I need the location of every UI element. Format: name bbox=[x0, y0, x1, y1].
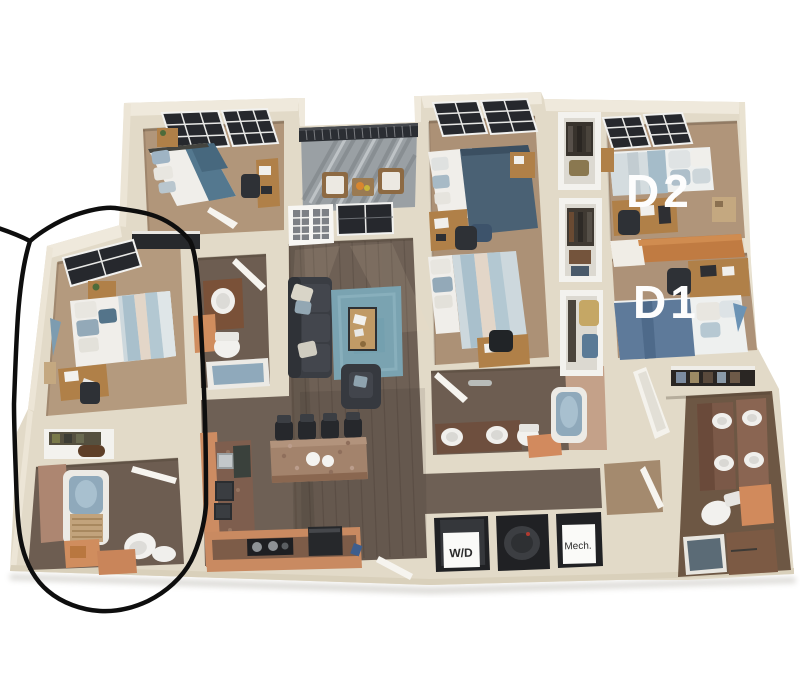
svg-text:W/D: W/D bbox=[449, 546, 473, 561]
svg-text:D2: D2 bbox=[626, 165, 693, 217]
svg-text:Mech.: Mech. bbox=[564, 541, 592, 553]
svg-text:D1: D1 bbox=[633, 276, 700, 328]
